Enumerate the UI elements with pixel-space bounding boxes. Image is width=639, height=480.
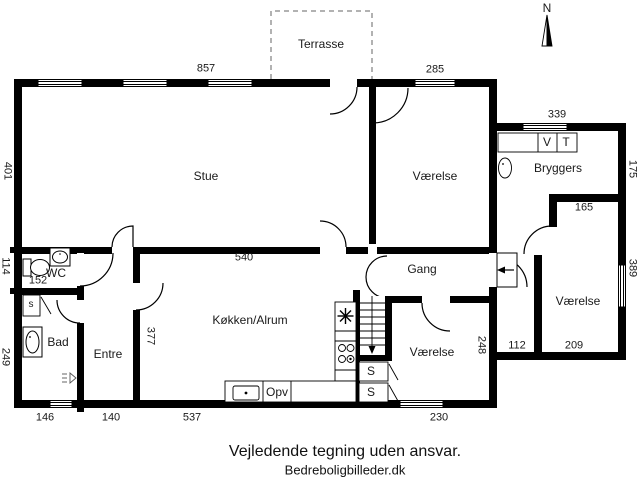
label-closet-s-2: S xyxy=(367,386,375,398)
dim-285: 285 xyxy=(426,65,444,76)
label-appliance-v: V xyxy=(543,136,551,148)
dim-140: 140 xyxy=(102,413,120,424)
label-appliance-t: T xyxy=(562,136,569,148)
label-terrasse: Terrasse xyxy=(298,38,344,50)
dim-389: 389 xyxy=(627,259,638,277)
dim-248: 248 xyxy=(476,336,487,354)
dim-401: 401 xyxy=(2,162,13,180)
labels-layer: 8572853394011142491521461405372305403772… xyxy=(0,0,639,480)
dim-209: 209 xyxy=(565,341,583,352)
dim-114: 114 xyxy=(0,257,11,275)
label-closet-s-bad: s xyxy=(29,300,34,310)
dim-857: 857 xyxy=(197,64,215,75)
dim-249: 249 xyxy=(0,348,11,366)
dim-230: 230 xyxy=(430,413,448,424)
label-closet-s-1: S xyxy=(367,365,375,377)
disclaimer-text: Vejledende tegning uden ansvar. xyxy=(229,443,461,461)
floorplan-page: 8572853394011142491521461405372305403772… xyxy=(0,0,639,480)
room-koekken-alrum: Køkken/Alrum xyxy=(212,314,287,326)
credit-text: Bedreboligbilleder.dk xyxy=(285,463,406,478)
dim-377: 377 xyxy=(145,327,156,345)
dim-152: 152 xyxy=(29,276,47,287)
compass-n-label: N xyxy=(543,2,552,14)
label-opv: Opv xyxy=(266,386,288,398)
dim-175: 175 xyxy=(627,160,638,178)
dim-146: 146 xyxy=(36,413,54,424)
room-entre: Entre xyxy=(94,348,123,360)
dim-165: 165 xyxy=(575,203,593,214)
room-vaerelse-nord: Værelse xyxy=(413,170,458,182)
room-bad: Bad xyxy=(47,336,68,348)
dim-537: 537 xyxy=(183,413,201,424)
room-vaerelse-oest: Værelse xyxy=(556,295,601,307)
room-bryggers: Bryggers xyxy=(534,162,582,174)
dim-339: 339 xyxy=(548,110,566,121)
dim-112: 112 xyxy=(508,341,526,352)
room-stue: Stue xyxy=(194,170,219,182)
dim-540: 540 xyxy=(235,253,253,264)
room-vaerelse-syd: Værelse xyxy=(410,346,455,358)
room-gang: Gang xyxy=(407,263,436,275)
room-wc: WC xyxy=(46,267,66,279)
